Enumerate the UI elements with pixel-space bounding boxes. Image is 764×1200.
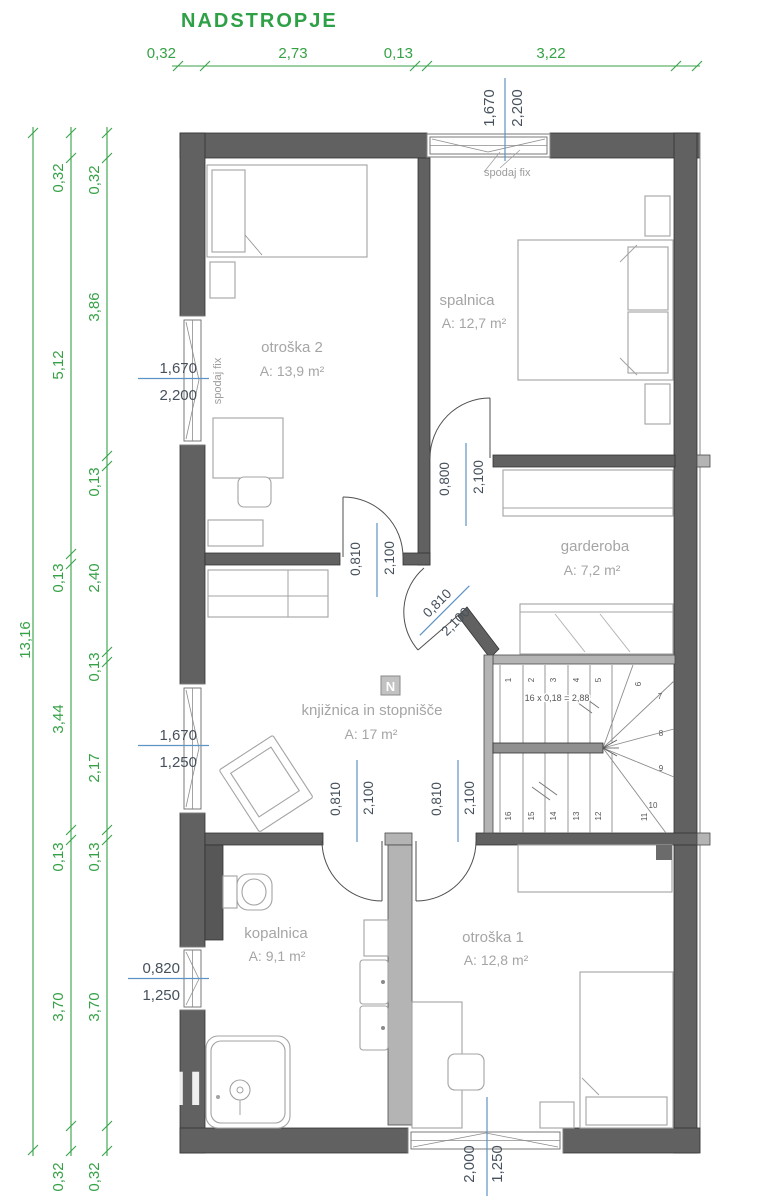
dim-left-inner-2: 0,13 [86, 467, 103, 496]
door-kopalnica-width: 0,810 [328, 782, 343, 816]
north-marker: N [381, 676, 400, 695]
bathtub [206, 1036, 290, 1128]
stair-step-10: 10 [649, 801, 658, 810]
label-window-left-upper: 1,670 2,200 spodaj fix [138, 357, 224, 404]
dim-left-inner-8: 0,32 [86, 1162, 103, 1191]
dresser-otroska2 [208, 520, 263, 546]
window-left-lower-width: 0,820 [142, 960, 180, 977]
stair-step-9: 9 [659, 764, 664, 773]
window-left-middle-height: 1,250 [159, 754, 197, 771]
window-top-note: spodaj fix [484, 167, 531, 179]
window-left-upper [180, 316, 205, 445]
wall-right [674, 133, 697, 1153]
dim-left-mid-5: 3,70 [50, 992, 67, 1021]
door-otroska2-height: 2,100 [382, 541, 397, 575]
wall-stairs-otroska1 [476, 833, 697, 845]
wall-knjiznica-kopalnica [205, 833, 323, 845]
stair-step-14: 14 [549, 811, 558, 820]
bookshelf [208, 570, 328, 617]
dim-top-0: 0,32 [147, 45, 176, 62]
stair-step-8: 8 [659, 729, 664, 738]
room-otroska1-area: A: 12,8 m² [464, 952, 529, 968]
wall-left-2 [180, 445, 205, 684]
wall-jamb-otroska2 [403, 553, 430, 565]
desk-corner-unit [656, 845, 672, 860]
door-otroska1-width: 0,810 [429, 782, 444, 816]
door-otroska2-width: 0,810 [348, 542, 363, 576]
dim-left-inner-7: 3,70 [86, 992, 103, 1021]
chair-otroska2 [238, 477, 271, 507]
window-left-middle [180, 684, 205, 813]
dim-left-mid-0: 0,32 [50, 163, 67, 192]
furniture-otroska1 [412, 845, 673, 1128]
stair-step-6: 6 [634, 681, 643, 686]
wall-stairs-left [484, 655, 493, 833]
dim-left-mid-6: 0,32 [50, 1162, 67, 1191]
nightstand-spalnica-1 [645, 196, 670, 236]
north-marker-letter: N [386, 679, 395, 694]
bed-otroska1 [580, 972, 673, 1128]
door-spalnica-height: 2,100 [471, 460, 486, 494]
dim-left-inner-6: 0,13 [86, 842, 103, 871]
wall-pier-kopalnica [205, 845, 223, 940]
chair-otroska1 [448, 1054, 484, 1090]
bath-cabinet [364, 920, 388, 956]
wall-top-left [180, 133, 427, 158]
room-spalnica-name: spalnica [439, 292, 495, 309]
stair-step-4: 4 [572, 677, 581, 682]
dim-left-mid-2: 0,13 [50, 563, 67, 592]
wall-bottom-right [563, 1128, 700, 1153]
stair-step-3: 3 [549, 677, 558, 682]
nightstand-otroska1 [540, 1102, 574, 1128]
label-window-top: 1,670 2,200 spodaj fix [481, 78, 531, 179]
label-door-otroska2: 0,810 2,100 [348, 523, 397, 597]
room-otroska2-area: A: 13,9 m² [260, 363, 325, 379]
dim-left-total: 13,16 [17, 621, 34, 659]
stair-step-15: 15 [527, 811, 536, 820]
window-left-middle-width: 1,670 [159, 727, 197, 744]
stair-center-wall [493, 743, 603, 753]
dim-left-inner-4: 0,13 [86, 652, 103, 681]
window-bottom-height: 1,250 [489, 1145, 506, 1183]
dim-top-3: 3,22 [536, 45, 565, 62]
stair-step-1: 1 [504, 677, 513, 682]
floor-plan-svg: NADSTROPJE 0,32 2,73 0,13 3,22 13,16 0,3… [0, 0, 764, 1200]
closet-garderoba-1 [503, 470, 673, 516]
wall-stub-right-1 [697, 455, 710, 467]
label-door-spalnica: 0,800 2,100 [437, 443, 486, 526]
wall-garderoba-stairs [493, 655, 675, 664]
nightstand-spalnica-2 [645, 384, 670, 424]
dimension-chain-left-middle: 0,32 5,12 0,13 3,44 0,13 3,70 0,32 [50, 127, 76, 1192]
window-left-upper-width: 1,670 [159, 360, 197, 377]
stair-formula: 16 x 0,18 = 2,88 [525, 693, 590, 703]
furniture-kopalnica [206, 874, 388, 1128]
wall-kopalnica-otroska1 [388, 845, 412, 1125]
room-knjiznica-area: A: 17 m² [345, 726, 398, 742]
plan-title: NADSTROPJE [181, 10, 338, 32]
wall-bottom-left [180, 1128, 408, 1153]
dim-top-1: 2,73 [278, 45, 307, 62]
room-knjiznica-name: knjižnica in stopnišče [302, 702, 443, 719]
dim-left-mid-3: 3,44 [50, 704, 67, 733]
label-door-otroska1: 0,810 2,100 [429, 760, 477, 842]
dimension-chain-left-inner: 0,32 3,86 0,13 2,40 0,13 2,17 0,13 3,70 … [86, 127, 112, 1192]
stair-step-16: 16 [504, 811, 513, 820]
dimension-chain-top: 0,32 2,73 0,13 3,22 [147, 45, 702, 71]
window-left-upper-note: spodaj fix [212, 357, 224, 404]
stair-step-11: 11 [640, 812, 649, 821]
window-left-lower-height: 1,250 [142, 987, 180, 1004]
stair-step-2: 2 [527, 677, 536, 682]
dim-left-inner-1: 3,86 [86, 292, 103, 321]
label-door-garderoba: 0,810 2,100 [407, 573, 485, 651]
floor-plan-page: NADSTROPJE 0,32 2,73 0,13 3,22 13,16 0,3… [0, 0, 764, 1200]
toilet-tank [223, 876, 237, 908]
room-garderoba-area: A: 7,2 m² [564, 562, 621, 578]
desk-otroska2 [213, 418, 283, 478]
dim-top-2: 0,13 [384, 45, 413, 62]
stair-step-12: 12 [594, 811, 603, 820]
door-kopalnica [322, 841, 382, 901]
stair-step-13: 13 [572, 811, 581, 820]
wall-otroska2-spalnica [418, 158, 430, 565]
room-kopalnica-name: kopalnica [244, 925, 308, 942]
door-spalnica-width: 0,800 [437, 462, 452, 496]
wall-otroska2-knjiznica [205, 553, 340, 565]
nightstand-otroska2 [210, 262, 235, 298]
desk-top-otroska1 [518, 845, 672, 892]
stair-step-5: 5 [594, 677, 603, 682]
window-top-width: 1,670 [481, 89, 498, 127]
dimension-chain-left-total: 13,16 [17, 127, 38, 1156]
door-otroska1 [416, 841, 476, 901]
room-spalnica-area: A: 12,7 m² [442, 315, 507, 331]
window-top-height: 2,200 [509, 89, 526, 127]
room-otroska1-name: otroška 1 [462, 929, 524, 946]
bed-otroska2 [207, 165, 367, 257]
dim-left-inner-5: 2,17 [86, 753, 103, 782]
armchair [219, 735, 313, 832]
window-left-upper-height: 2,200 [159, 387, 197, 404]
room-otroska2-name: otroška 2 [261, 339, 323, 356]
wall-spalnica-garderoba [493, 455, 675, 467]
wall-jamb-doors [385, 833, 412, 845]
staircase: 16 x 0,18 = 2,88 1 2 3 4 5 6 7 8 9 10 11… [493, 665, 674, 833]
stair-step-7: 7 [658, 692, 663, 701]
door-garderoba-width: 0,810 [420, 586, 455, 621]
dim-left-inner-0: 0,32 [86, 165, 103, 194]
door-spalnica [430, 398, 490, 458]
furniture-spalnica [518, 196, 673, 424]
door-otroska1-height: 2,100 [462, 781, 477, 815]
room-kopalnica-area: A: 9,1 m² [249, 948, 306, 964]
watermark-text: MI [146, 1063, 205, 1116]
window-bottom-width: 2,000 [461, 1145, 478, 1183]
dim-left-mid-4: 0,13 [50, 842, 67, 871]
label-door-kopalnica: 0,810 2,100 [328, 760, 376, 842]
window-bottom [408, 1128, 563, 1153]
wall-stub-right-2 [697, 833, 710, 845]
wall-left-3 [180, 813, 205, 947]
window-top [427, 133, 550, 158]
dim-left-inner-3: 2,40 [86, 563, 103, 592]
wall-left-1 [180, 133, 205, 316]
room-garderoba-name: garderoba [561, 538, 630, 555]
dim-left-mid-1: 5,12 [50, 350, 67, 379]
door-kopalnica-height: 2,100 [361, 781, 376, 815]
